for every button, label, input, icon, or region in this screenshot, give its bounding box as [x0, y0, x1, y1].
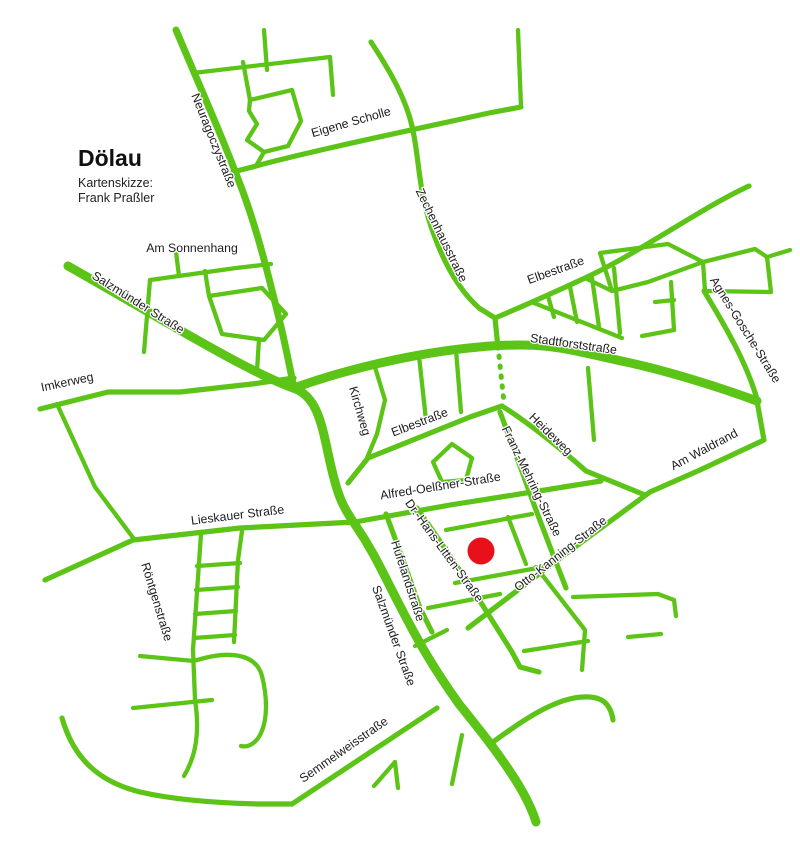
road-ladder-tooth-4 [614, 268, 620, 333]
road-ne-rung-1 [655, 300, 674, 302]
road-roentgen-rung-4 [194, 635, 235, 638]
road-center-connector-2 [456, 350, 461, 412]
road-roentgen-rung-1 [197, 563, 240, 566]
road-north-loop [247, 90, 301, 152]
road-otto-kanning-rung-2 [628, 634, 661, 637]
road-south-stub [452, 735, 462, 784]
road-sonnenhang-tail [257, 339, 259, 371]
road-sonnenhang-stub-south [205, 271, 209, 296]
street-label-zechenhausstrasse: Zechenhausstraße [413, 186, 471, 284]
road-sonnenhang-main [150, 264, 271, 280]
map-subtitle-line1: Kartenskizze: [78, 176, 153, 190]
road-center-connector-1 [419, 356, 426, 420]
street-label-kirchweg: Kirchweg [346, 385, 373, 438]
road-grid-rung-c [428, 594, 500, 608]
map-sketch-doelau: NeuragoczystraßeEigene ScholleZechenhaus… [0, 0, 800, 855]
road-roentgen-rung-2 [196, 587, 238, 590]
road-north-stub-2 [330, 57, 333, 95]
street-label-heideweg: Heideweg [526, 410, 575, 458]
road-ne-stub [767, 250, 790, 257]
street-label-hufelandstrasse: Hufelandstraße [388, 539, 427, 623]
road-ne-vertical [671, 282, 674, 330]
map-title: Dölau [78, 145, 142, 171]
road-southwest-arc [62, 718, 292, 804]
road-semmelweis-spur-2 [395, 762, 398, 788]
title-block: Dölau Kartenskizze: Frank Praßler [78, 145, 154, 205]
street-label-am-sonnenhang: Am Sonnenhang [146, 241, 238, 255]
map-canvas: NeuragoczystraßeEigene ScholleZechenhaus… [0, 0, 800, 855]
road-roentgen-rung-3 [195, 611, 236, 614]
street-label-roentgenstrasse: Röntgenstraße [138, 561, 175, 643]
road-semmelweis-spur-1 [374, 762, 395, 786]
road-ne-rung-2 [642, 330, 674, 336]
road-imkerweg-branch [57, 404, 134, 539]
road-otto-kanning-branch-1 [536, 567, 585, 670]
road-grid-connector [508, 517, 526, 564]
road-otto-kanning-rung-1 [524, 641, 588, 651]
road-sonnenhang-stub-north [176, 252, 179, 276]
road-roentgen-branch-1 [140, 656, 194, 661]
location-marker [468, 538, 495, 565]
road-heideweg-connector [588, 368, 594, 440]
road-north-side-street [193, 57, 330, 73]
road-stadtforststrasse [294, 345, 757, 401]
road-zechenhausstrasse [371, 42, 498, 348]
road-planned-segment-dotted [499, 356, 504, 403]
road-north-stub-1 [264, 30, 267, 70]
road-roentgen-branch-2 [133, 700, 212, 708]
road-semmelweisstrasse [292, 708, 437, 804]
road-south-branch [489, 697, 613, 745]
map-subtitle-line2: Frank Praßler [78, 191, 154, 205]
road-grid-rung-a [446, 514, 532, 530]
street-label-elbestrasse-mitte: Elbestraße [389, 405, 450, 439]
street-label-imkerweg: Imkerweg [40, 370, 95, 395]
road-north-stub-3 [518, 30, 521, 107]
road-kirchweg [367, 364, 385, 458]
street-label-neuragoczystrasse: Neuragoczystraße [188, 91, 239, 190]
road-ladder-tooth-1 [548, 296, 554, 317]
road-roentgen-rail-left [193, 534, 201, 700]
road-roentgen-tail [184, 700, 197, 776]
road-otto-kanning-branch-2 [573, 594, 676, 616]
